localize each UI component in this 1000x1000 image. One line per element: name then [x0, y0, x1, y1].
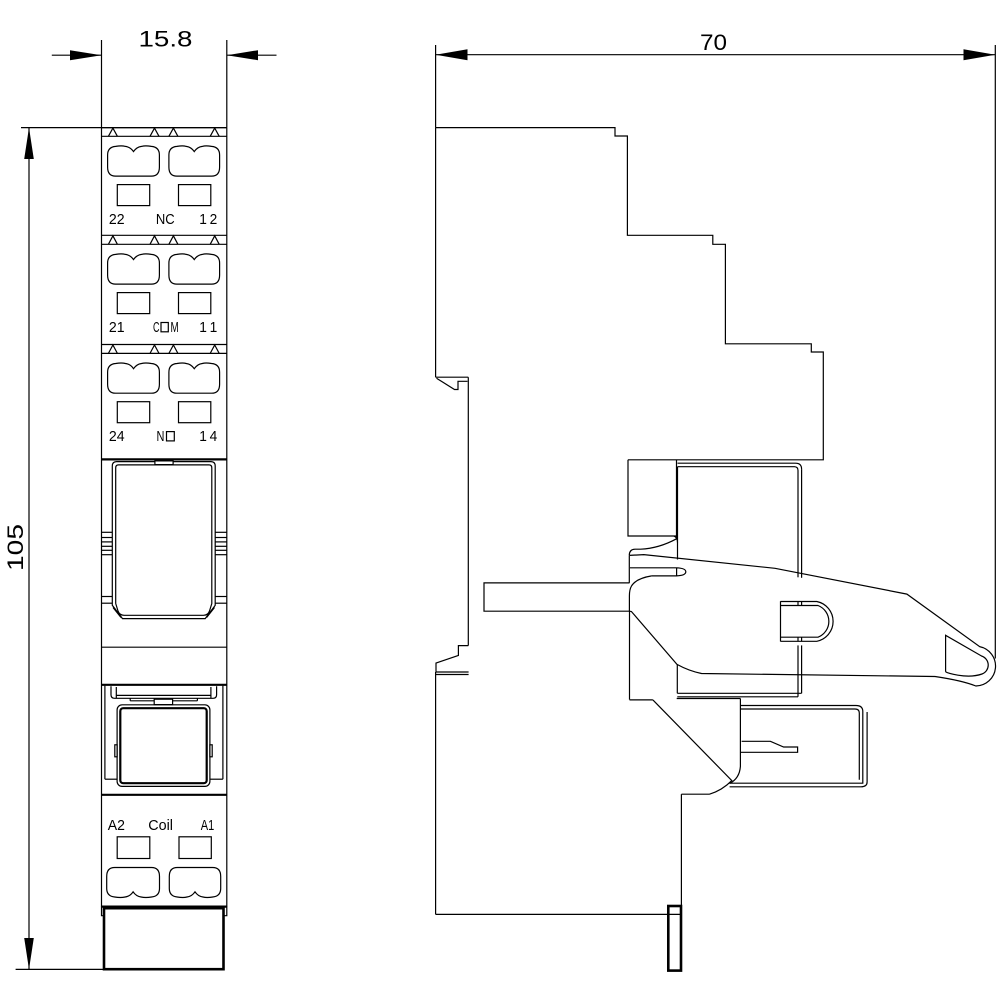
svg-text:15.8: 15.8 — [139, 27, 193, 52]
svg-text:70: 70 — [700, 30, 727, 55]
svg-text:C: C — [153, 320, 160, 336]
svg-text:1 4: 1 4 — [199, 429, 217, 445]
svg-text:A2: A2 — [108, 818, 125, 834]
svg-text:21: 21 — [109, 320, 125, 336]
svg-text:A1: A1 — [201, 818, 215, 834]
svg-text:24: 24 — [109, 429, 125, 445]
svg-text:N: N — [157, 429, 165, 445]
svg-text:105: 105 — [3, 524, 28, 571]
svg-text:M: M — [171, 320, 179, 336]
svg-text:1 2: 1 2 — [199, 212, 217, 228]
svg-text:22: 22 — [109, 212, 125, 228]
svg-text:1 1: 1 1 — [199, 320, 217, 336]
svg-text:Coil: Coil — [148, 818, 173, 834]
svg-text:NC: NC — [156, 212, 175, 228]
